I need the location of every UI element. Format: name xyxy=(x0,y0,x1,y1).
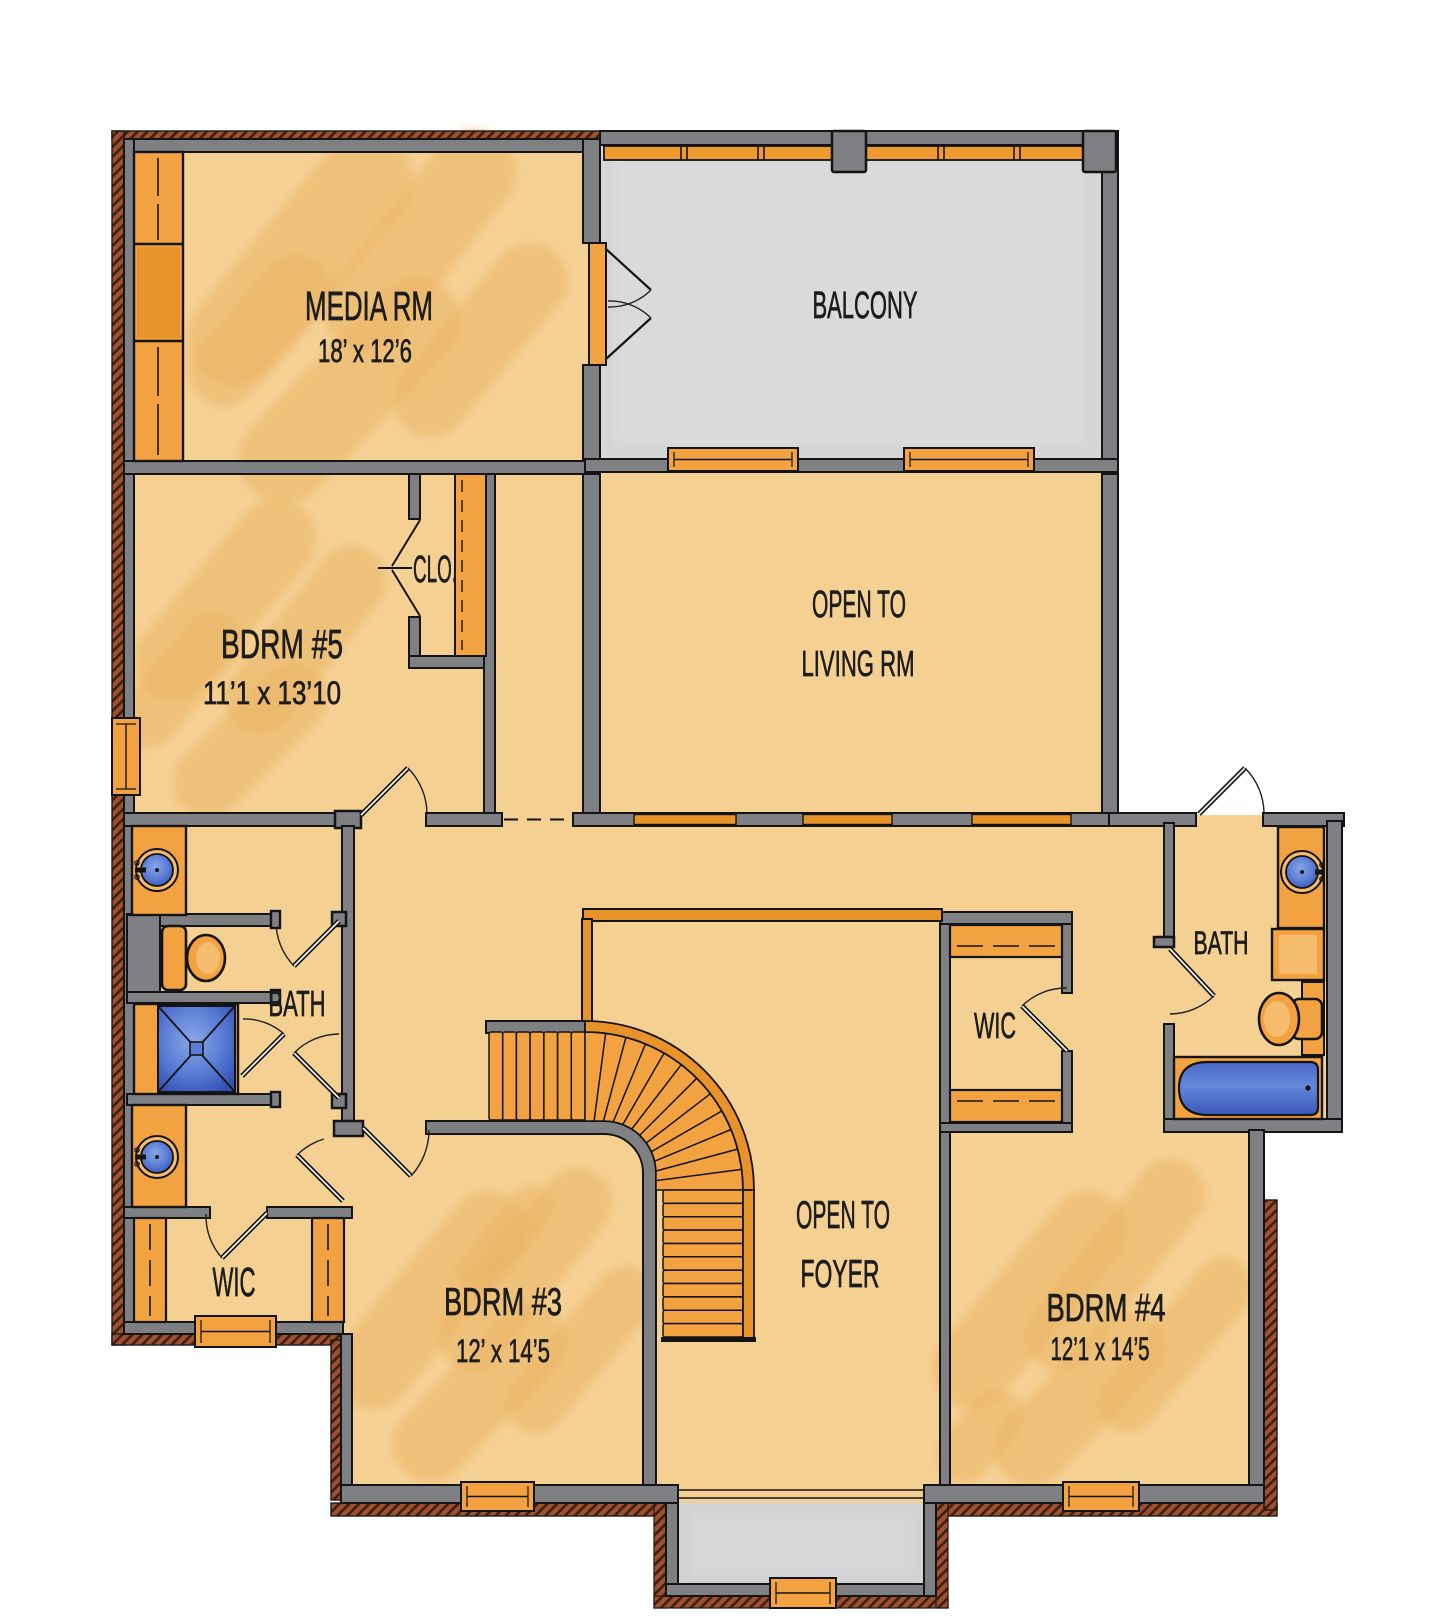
svg-text:BATH: BATH xyxy=(1194,925,1249,961)
svg-text:MEDIA RM: MEDIA RM xyxy=(305,283,433,329)
svg-text:BDRM #3: BDRM #3 xyxy=(444,1281,562,1324)
svg-text:BALCONY: BALCONY xyxy=(813,284,918,326)
svg-text:12’ x 14’5: 12’ x 14’5 xyxy=(456,1333,550,1369)
svg-text:WIC: WIC xyxy=(974,1005,1016,1046)
svg-text:18’ x 12’6: 18’ x 12’6 xyxy=(318,333,412,369)
svg-text:11’1 x 13’10: 11’1 x 13’10 xyxy=(203,675,341,711)
svg-text:BATH: BATH xyxy=(269,983,326,1024)
svg-text:BDRM #5: BDRM #5 xyxy=(221,621,343,667)
svg-text:CLO.: CLO. xyxy=(413,548,457,590)
svg-text:OPEN TO: OPEN TO xyxy=(812,583,906,625)
svg-text:OPEN TO: OPEN TO xyxy=(796,1194,890,1237)
svg-text:BDRM #4: BDRM #4 xyxy=(1047,1287,1166,1330)
svg-text:12’1 x 14’5: 12’1 x 14’5 xyxy=(1051,1331,1150,1367)
svg-text:WIC: WIC xyxy=(213,1259,256,1305)
svg-text:FOYER: FOYER xyxy=(801,1253,880,1296)
svg-text:LIVING RM: LIVING RM xyxy=(802,643,915,684)
